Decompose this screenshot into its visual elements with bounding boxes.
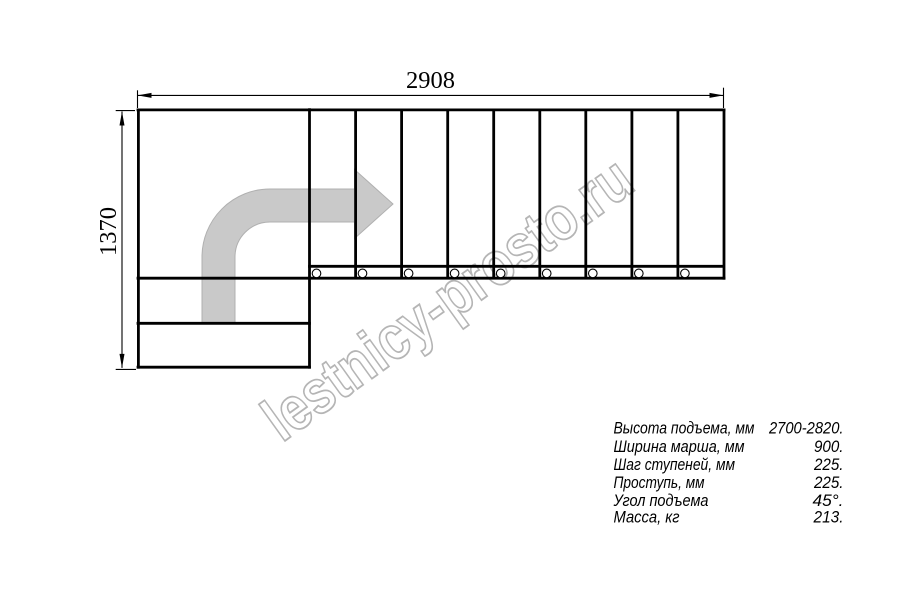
svg-text:Высота подъема, мм: Высота подъема, мм <box>614 419 755 438</box>
svg-text:Шаг ступеней, мм: Шаг ступеней, мм <box>614 455 736 474</box>
svg-text:225.: 225. <box>813 455 843 474</box>
svg-text:Проступь, мм: Проступь, мм <box>614 473 705 492</box>
svg-text:2908: 2908 <box>406 67 455 94</box>
svg-text:225.: 225. <box>813 473 843 492</box>
svg-text:1370: 1370 <box>95 207 122 256</box>
svg-text:Масса, кг: Масса, кг <box>614 508 680 527</box>
svg-text:213.: 213. <box>813 508 844 527</box>
svg-text:Ширина марша, мм: Ширина марша, мм <box>614 437 745 456</box>
svg-text:2700-2820.: 2700-2820. <box>768 419 843 438</box>
svg-text:900.: 900. <box>814 437 844 456</box>
